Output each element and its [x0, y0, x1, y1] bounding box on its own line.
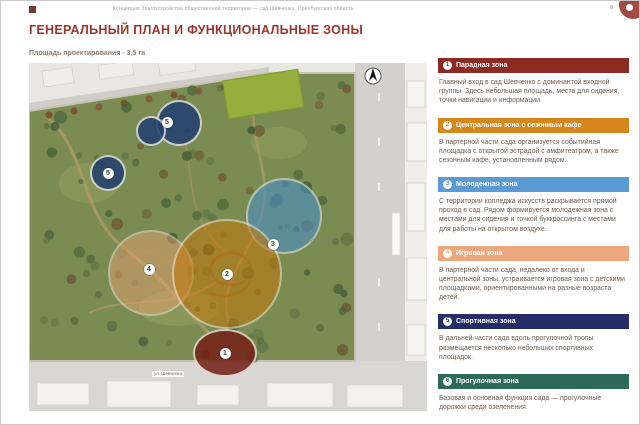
slide-page: Концепция благоустройства общественной т…	[0, 0, 640, 425]
zone-marker-5: 5	[103, 168, 114, 179]
legend-header: 4 Игровая зона	[438, 246, 629, 261]
legend-section-central: 2 Центральная зона с сезонным кафе В пар…	[438, 118, 629, 166]
zones-legend: 1 Парадная зона Главный вход в сад Шевче…	[438, 58, 629, 424]
zone-marker-2: 2	[222, 269, 233, 280]
legend-text: Базовая и основная функция сада — прогул…	[439, 394, 628, 412]
legend-header: 2 Центральная зона с сезонным кафе	[438, 118, 629, 133]
legend-section-sport: 5 Спортивная зона В дальней части сада в…	[438, 314, 629, 362]
street-label: ул. Шевченко	[151, 370, 185, 378]
legend-title: Спортивная зона	[456, 318, 516, 325]
zone-number-badge: 2	[443, 121, 452, 130]
legend-text: Главный вход в сад Шевченко с доминантой…	[439, 78, 628, 106]
zone-number-badge: 3	[443, 180, 452, 189]
zone-marker-4: 4	[144, 264, 155, 275]
zone-marker-1: 1	[220, 348, 231, 359]
zone-marker-5: 5	[162, 117, 173, 128]
legend-section-parade: 1 Парадная зона Главный вход в сад Шевче…	[438, 58, 629, 106]
zone-number-badge: 1	[443, 61, 452, 70]
legend-title: Молодежная зона	[456, 181, 518, 188]
legend-title: Парадная зона	[456, 62, 507, 69]
functional-zones-overlay: 553241	[29, 63, 427, 411]
legend-text: В дальней части сада вдоль прогулочной т…	[439, 334, 628, 362]
legend-header: 1 Парадная зона	[438, 58, 629, 73]
legend-header: 6 Прогулочная зона	[438, 374, 629, 389]
legend-section-walk: 6 Прогулочная зона Базовая и основная фу…	[438, 374, 629, 412]
legend-text: В партерной части сада, недалеко от вход…	[439, 266, 628, 303]
legend-header: 3 Молодежная зона	[438, 177, 629, 192]
college-label: колледж искусств	[299, 237, 341, 243]
legend-title: Прогулочная зона	[456, 378, 519, 385]
legend-text: В партерной части сада организуется собы…	[439, 138, 628, 166]
legend-section-youth: 3 Молодежная зона С территории колледжа …	[438, 177, 629, 234]
zone-marker-3: 3	[268, 239, 279, 250]
page-subtitle: Площадь проектирования - 3,5 га	[29, 50, 145, 57]
zone-number-badge: 6	[443, 377, 452, 386]
brand-logo-dot	[626, 4, 633, 11]
legend-header: 5 Спортивная зона	[438, 314, 629, 329]
zone-number-badge: 5	[443, 317, 452, 326]
zone-number-badge: 4	[443, 249, 452, 258]
masterplan-map: 553241 колледж искусств ул. Шевченко	[29, 63, 427, 411]
legend-title: Центральная зона с сезонным кафе	[456, 122, 582, 129]
legend-text: С территории колледжа искусств раскрывае…	[439, 197, 628, 234]
legend-title: Игровая зона	[456, 250, 502, 257]
document-header: Концепция благоустройства общественной т…	[113, 6, 533, 12]
page-title: ГЕНЕРАЛЬНЫЙ ПЛАН И ФУНКЦИОНАЛЬНЫЕ ЗОНЫ	[29, 23, 363, 37]
logo-mark	[29, 6, 36, 13]
brand-logo-icon	[619, 0, 640, 19]
page-number: 8	[610, 5, 613, 11]
legend-section-play: 4 Игровая зона В партерной части сада, н…	[438, 246, 629, 303]
